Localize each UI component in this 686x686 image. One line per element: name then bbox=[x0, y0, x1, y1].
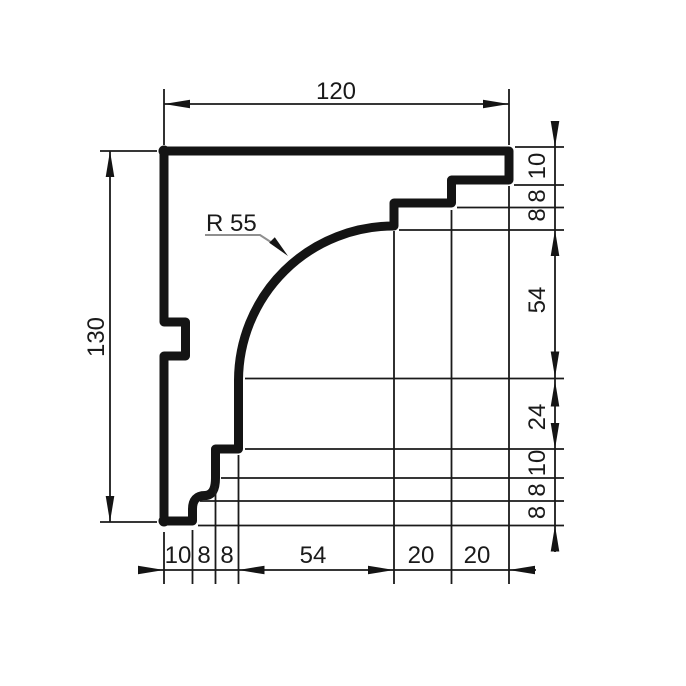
dim-label: 10 bbox=[524, 450, 551, 477]
dimension-top: 120 bbox=[164, 78, 509, 145]
dim-label-top: 120 bbox=[316, 78, 356, 105]
corner-dot-bottom-left bbox=[159, 516, 170, 527]
arrow-left bbox=[164, 100, 190, 109]
profile bbox=[159, 146, 510, 527]
profile-outline bbox=[164, 151, 509, 521]
dim-label: 54 bbox=[300, 542, 327, 569]
arrow-down-54 bbox=[551, 352, 560, 378]
dim-label: 24 bbox=[524, 404, 551, 431]
technical-drawing: 120 130 10 8 8 54 24 10 8 8 bbox=[0, 0, 686, 686]
arrow-right-outside bbox=[138, 566, 164, 575]
dim-label: 8 bbox=[197, 542, 210, 569]
dim-label: 8 bbox=[524, 189, 551, 202]
radius-label: R 55 bbox=[206, 210, 257, 237]
leader-arrowhead bbox=[269, 237, 288, 256]
arrow-up-54 bbox=[551, 230, 560, 256]
dim-label: 10 bbox=[524, 153, 551, 180]
dim-label: 8 bbox=[524, 506, 551, 519]
arrow-down bbox=[106, 496, 115, 522]
dimension-left: 130 bbox=[83, 151, 157, 522]
arrow-down-24 bbox=[551, 423, 560, 449]
dim-label: 20 bbox=[408, 542, 435, 569]
arrow-up bbox=[106, 151, 115, 177]
arrow-right-54 bbox=[368, 566, 394, 575]
arrow-up-24 bbox=[551, 381, 560, 407]
dim-label: 8 bbox=[220, 542, 233, 569]
arrow-left-outside bbox=[509, 566, 535, 575]
arrow-right bbox=[483, 100, 509, 109]
drawing-canvas: 120 130 10 8 8 54 24 10 8 8 bbox=[0, 0, 686, 686]
radius-callout: R 55 bbox=[205, 210, 288, 256]
corner-dot-top-left bbox=[159, 146, 170, 157]
arrow-up-outside bbox=[551, 526, 560, 552]
dim-label: 54 bbox=[524, 287, 551, 314]
dim-label: 8 bbox=[524, 208, 551, 221]
arrow-down-outside bbox=[551, 121, 560, 147]
arrow-left-54 bbox=[239, 566, 265, 575]
dim-label: 20 bbox=[464, 542, 491, 569]
dimension-bottom-chain: 10 8 8 54 20 20 bbox=[138, 186, 536, 584]
dim-label: 8 bbox=[524, 483, 551, 496]
dim-label-left: 130 bbox=[83, 317, 110, 357]
dim-label: 10 bbox=[165, 542, 192, 569]
